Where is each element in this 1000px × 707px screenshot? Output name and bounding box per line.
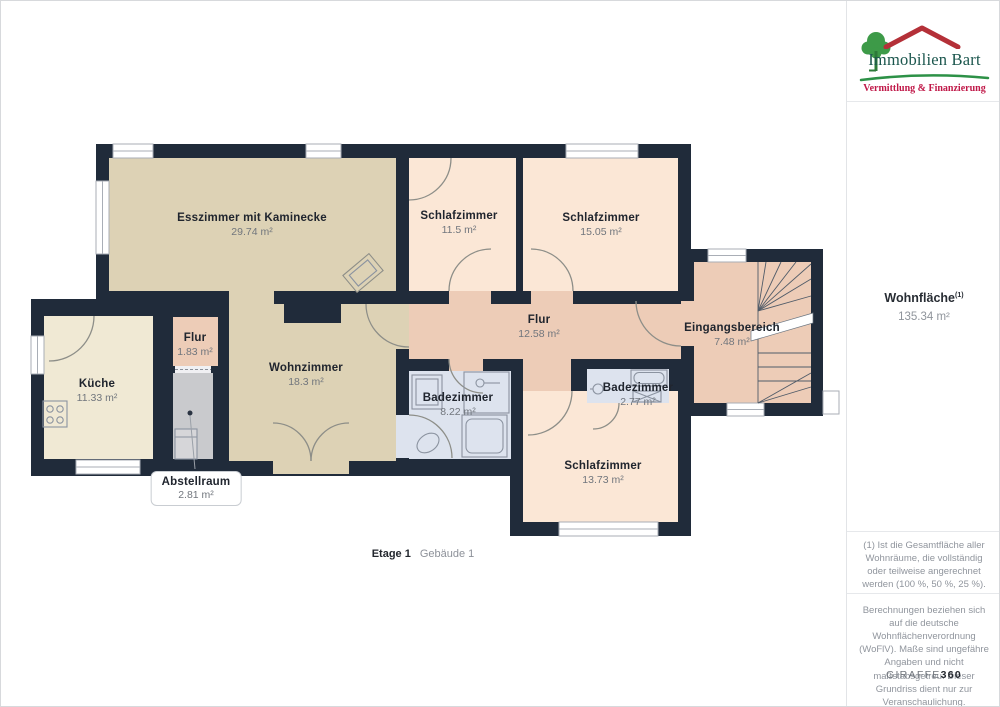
chimney-wall (284, 304, 341, 323)
flur-passage-fill (523, 359, 571, 394)
room-label-flur: Flur 12.58 m² (518, 314, 559, 340)
room-label-wohnzimmer: Wohnzimmer 18.3 m² (269, 362, 343, 388)
floorplan-page: Esszimmer mit Kaminecke 29.74 m² Schlafz… (0, 0, 1000, 707)
footnote-marker: (1) (955, 292, 964, 299)
logo-swoosh-icon (859, 71, 990, 83)
room-label-eingangsbereich: Eingangsbereich 7.48 m² (684, 322, 780, 348)
logo-title: Immobilien Bart (847, 50, 1000, 70)
living-area-block: Wohnfläche(1) 135.34 m² (847, 291, 1000, 323)
esszimmer-wohnzimmer-opening (229, 291, 274, 304)
sidebar-divider-bottom (847, 593, 1000, 594)
room-callout-abstellraum: Abstellraum 2.81 m² (151, 471, 242, 506)
building-label: Gebäude 1 (420, 548, 474, 560)
floor-label: Etage 1 (372, 548, 411, 560)
floor-plan: Esszimmer mit Kaminecke 29.74 m² Schlafz… (1, 1, 846, 707)
floor-caption: Etage 1 Gebäude 1 (372, 548, 475, 560)
room-label-esszimmer: Esszimmer mit Kaminecke 29.74 m² (177, 212, 327, 238)
company-logo: Immobilien Bart Vermittlung & Finanzieru… (847, 15, 1000, 95)
room-label-schlafzimmer3: Schlafzimmer 13.73 m² (564, 460, 641, 486)
sidebar-divider-middle (847, 531, 1000, 532)
sidebar: Immobilien Bart Vermittlung & Finanzieru… (846, 1, 1000, 707)
living-area-label: Wohnfläche(1) (847, 291, 1000, 305)
room-label-badezimmer2: Badezimmer 2.77 m² (603, 382, 673, 408)
floor-plan-drawing (1, 1, 846, 707)
room-label-kueche: Küche 11.33 m² (77, 378, 118, 404)
room-label-schlafzimmer2: Schlafzimmer 15.05 m² (562, 212, 639, 238)
room-label-schlafzimmer1: Schlafzimmer 11.5 m² (420, 210, 497, 236)
logo-roof-icon (883, 23, 961, 49)
disclaimer-text: Berechnungen beziehen sich auf die deuts… (857, 604, 991, 707)
sidebar-divider-top (847, 101, 1000, 102)
logo-tagline: Vermittlung & Finanzierung (847, 83, 1000, 94)
room-label-badezimmer1: Badezimmer 8.22 m² (423, 392, 493, 418)
living-area-value: 135.34 m² (847, 311, 1000, 323)
room-label-flur-klein: Flur 1.83 m² (177, 332, 213, 358)
footnote-text: (1) Ist die Gesamtfläche aller Wohnräume… (857, 539, 991, 591)
giraffe360-brand: GIRAFFE360 (847, 669, 1000, 681)
